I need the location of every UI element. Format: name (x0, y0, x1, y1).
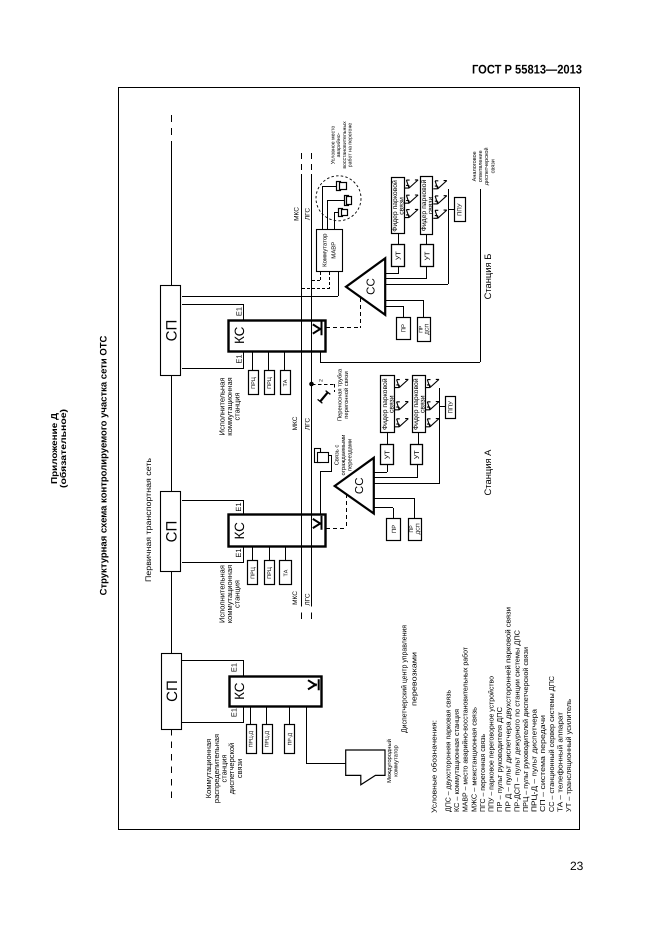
svg-text:ТА: ТА (283, 569, 289, 576)
svg-text:Станция Б: Станция Б (482, 254, 493, 300)
svg-text:станция: станция (233, 393, 242, 421)
svg-text:ЛГС: ЛГС (304, 418, 311, 430)
svg-text:Структурная схема контролируем: Структурная схема контролируемого участк… (99, 335, 110, 595)
svg-text:Переносная трубка: Переносная трубка (337, 368, 344, 421)
svg-text:диспетчерской: диспетчерской (483, 147, 490, 185)
svg-text:Е1: Е1 (234, 548, 243, 557)
svg-text:Первичная транспортная сеть: Первичная транспортная сеть (144, 458, 153, 582)
svg-text:КС: КС (232, 326, 247, 344)
svg-text:станция: станция (233, 580, 242, 608)
svg-text:МКС: МКС (294, 207, 301, 221)
svg-text:СП: СП (163, 320, 180, 342)
svg-text:связи: связи (399, 197, 406, 215)
svg-text:(обязательное): (обязательное) (58, 409, 68, 488)
svg-text:ЛГС: ЛГС (304, 593, 311, 605)
svg-text:23: 23 (570, 859, 584, 873)
svg-text:МАВР – место аварийно-восстано: МАВР – место аварийно-восстановительных … (461, 646, 470, 812)
svg-text:ПР-Д: ПР-Д (288, 732, 294, 745)
svg-text:ПР: ПР (401, 324, 408, 332)
svg-text:УТ: УТ (414, 450, 421, 459)
svg-text:связи: связи (419, 395, 426, 413)
svg-text:ответвление: ответвление (478, 150, 484, 182)
svg-text:СС – станционный сервер систем: СС – станционный сервер системы ДПС (547, 676, 556, 812)
svg-text:связи: связи (490, 159, 496, 173)
svg-text:ЛГС: ЛГС (304, 208, 311, 220)
svg-text:СП: СП (164, 680, 181, 702)
svg-text:ДСП: ДСП (425, 323, 431, 334)
svg-text:УТ: УТ (385, 450, 392, 459)
svg-text:УТ – трансляционный усилитель: УТ – трансляционный усилитель (564, 699, 573, 812)
svg-text:коммутатор: коммутатор (394, 745, 400, 776)
svg-text:ПР Д – пульт диспетчера двухст: ПР Д – пульт диспетчера двухсторонней па… (504, 607, 513, 812)
svg-text:СП: СП (163, 521, 180, 543)
svg-text:Условные обозначения:: Условные обозначения: (429, 720, 438, 813)
svg-text:переездами: переездами (347, 439, 353, 471)
svg-text:Аналоговое: Аналоговое (472, 151, 478, 181)
svg-text:КС: КС (232, 522, 247, 540)
svg-text:МКС: МКС (292, 416, 299, 430)
svg-text:Междугородный: Междугородный (386, 739, 393, 783)
svg-text:ПРЦ-Д: ПРЦ-Д (249, 730, 255, 747)
svg-text:ПРЦ: ПРЦ (267, 377, 273, 389)
svg-text:ограждаемыми: ограждаемыми (341, 435, 347, 476)
svg-text:КС: КС (232, 682, 247, 700)
svg-text:ПРЦ: ПРЦ (251, 567, 257, 579)
svg-text:перегонной связи: перегонной связи (343, 371, 350, 418)
svg-text:Связь с: Связь с (333, 445, 340, 466)
svg-text:Е1: Е1 (230, 708, 239, 717)
svg-text:Станция А: Станция А (482, 449, 493, 496)
svg-text:ПРЦ: ПРЦ (267, 567, 273, 579)
svg-text:связи: связи (388, 395, 395, 413)
svg-text:ДСП: ДСП (415, 523, 421, 534)
svg-text:Е1: Е1 (234, 502, 243, 511)
svg-text:ППУ: ППУ (457, 203, 464, 216)
svg-text:Коммутатор: Коммутатор (322, 233, 329, 267)
svg-text:ПР: ПР (418, 325, 424, 333)
svg-text:ПР: ПР (409, 525, 415, 533)
svg-text:СС: СС (365, 278, 377, 295)
svg-text:МКС: МКС (292, 591, 299, 605)
svg-text:2: 2 (319, 379, 325, 382)
svg-text:связи: связи (235, 759, 244, 778)
svg-text:УТ: УТ (395, 251, 402, 260)
svg-text:МАВР: МАВР (331, 242, 338, 259)
svg-text:ППУ: ППУ (448, 401, 455, 414)
svg-text:ПР: ПР (391, 525, 398, 533)
svg-text:Е1: Е1 (235, 307, 244, 316)
svg-text:Е1: Е1 (230, 663, 239, 672)
svg-text:УТ: УТ (424, 251, 431, 260)
svg-text:ТА: ТА (283, 379, 289, 386)
svg-text:Е1: Е1 (235, 354, 244, 363)
svg-text:связи: связи (428, 197, 435, 215)
svg-text:ГОСТ Р 55813—2013: ГОСТ Р 55813—2013 (472, 63, 582, 77)
svg-text:СС: СС (354, 477, 366, 494)
svg-text:перевозками: перевозками (410, 652, 419, 706)
svg-text:ПРЦ-Д: ПРЦ-Д (265, 730, 271, 747)
svg-text:работ на перегоне: работ на перегоне (348, 123, 354, 168)
svg-text:ПРЦ: ПРЦ (251, 377, 257, 389)
svg-text:Диспетчерский центр управления: Диспетчерский центр управления (399, 625, 408, 733)
